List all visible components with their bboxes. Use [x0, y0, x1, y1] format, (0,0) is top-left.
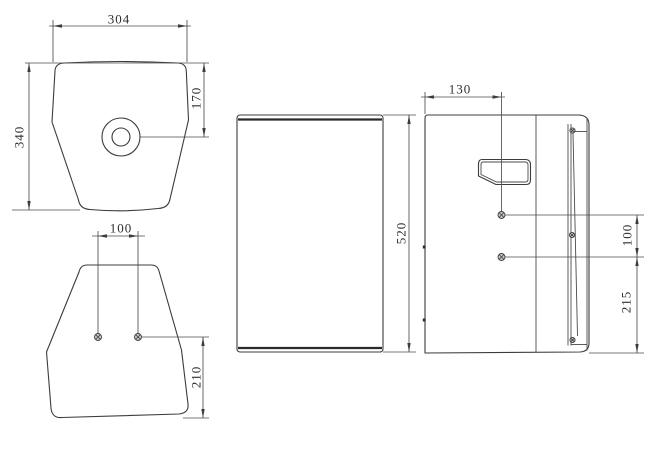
dim-insert-offset-bottom-label: 210: [189, 366, 204, 389]
arrow-down-icon: [635, 248, 638, 257]
dimension-insert-spacing-side: 100: [620, 215, 639, 257]
top-view: 304 340 170: [12, 12, 210, 211]
bottom-view: 100 210: [47, 221, 210, 419]
dimension-top-width: 304: [49, 12, 191, 63]
arrow-up-icon: [202, 63, 205, 72]
side-view-outline: [425, 115, 589, 353]
insert-screw-left: [95, 334, 102, 341]
bottom-view-outline: [47, 265, 189, 418]
dimension-front-height: 520: [383, 115, 416, 352]
dimension-insert-offset-side: 215: [619, 257, 639, 353]
grille-strip: [568, 118, 587, 351]
handle-cutout: [479, 160, 531, 185]
grille-screw-top: [570, 128, 575, 133]
dimension-handle-position: 130: [421, 82, 505, 115]
side-view: 130 100 215: [421, 82, 644, 354]
dim-insert-spacing-side-label: 100: [620, 224, 635, 247]
arrow-left-icon: [53, 24, 62, 27]
insert-screw-right: [135, 334, 142, 341]
grille-screw-middle: [569, 232, 574, 237]
pole-socket-outer-circle: [102, 118, 140, 156]
arrow-down-icon: [27, 201, 30, 210]
arrow-right-icon: [178, 24, 187, 27]
pole-socket-inner-circle: [112, 128, 130, 146]
arrow-up-icon: [635, 257, 638, 266]
arrow-up-icon: [407, 115, 410, 124]
rear-edge-tick-upper: [423, 246, 426, 249]
dim-insert-spacing-bottom-label: 100: [110, 221, 133, 236]
dimension-insert-spacing-bottom: 100: [92, 221, 145, 334]
dimension-top-depth: 340: [12, 63, 81, 210]
arrow-up-icon: [635, 215, 638, 224]
arrow-left-icon: [425, 95, 434, 98]
arrow-up-icon: [27, 63, 30, 72]
arrow-up-icon: [201, 337, 204, 346]
dim-top-width-label: 304: [108, 12, 131, 27]
dimension-socket-position: 170: [140, 63, 209, 137]
dim-socket-position-label: 170: [189, 87, 204, 110]
side-insert-screw-lower: [498, 254, 505, 261]
arrow-down-icon: [635, 344, 638, 353]
front-view: 520: [237, 115, 416, 352]
top-view-outline: [52, 62, 189, 211]
dimension-insert-offset-bottom: 210: [142, 337, 210, 418]
dim-handle-position-label: 130: [449, 82, 472, 97]
arrow-down-icon: [201, 409, 204, 418]
arrow-right-icon: [493, 95, 502, 98]
front-view-outline: [237, 115, 383, 352]
arrow-down-icon: [407, 343, 410, 352]
dim-front-height-label: 520: [394, 222, 409, 245]
arrow-down-icon: [202, 128, 205, 137]
arrow-left-icon: [98, 234, 107, 237]
dim-insert-offset-side-label: 215: [619, 291, 634, 314]
technical-drawing-canvas: 304 340 170: [0, 0, 650, 450]
side-insert-screw-upper: [498, 212, 505, 219]
grille-screw-bottom: [570, 337, 575, 342]
rear-edge-tick-lower: [423, 319, 426, 322]
dim-top-depth-label: 340: [12, 126, 27, 149]
drawing-sheet: 304 340 170: [0, 0, 650, 450]
